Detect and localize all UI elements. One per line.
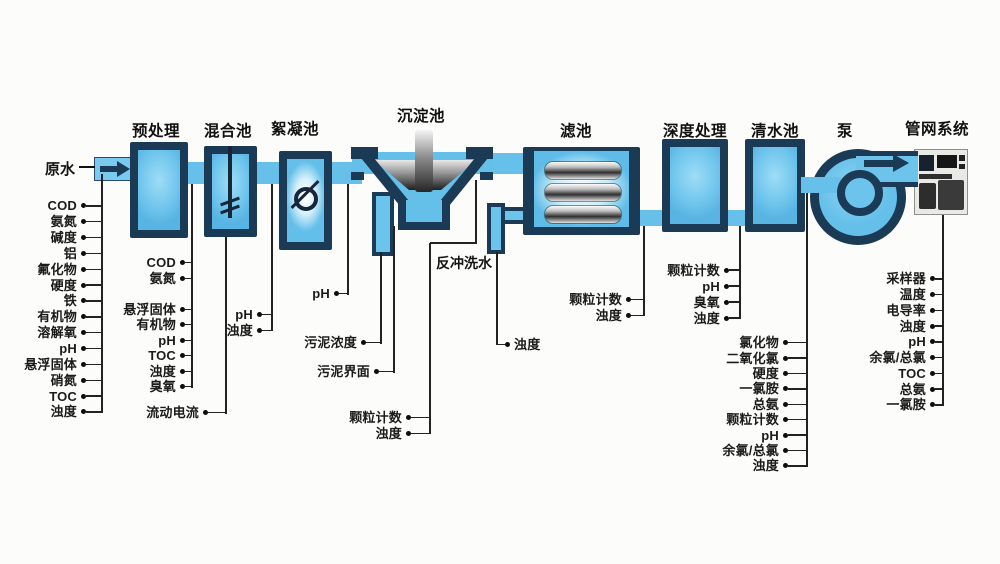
connector-line bbox=[380, 252, 381, 344]
connector-tick bbox=[86, 411, 102, 412]
param-label: pH bbox=[59, 342, 77, 355]
connector-tick bbox=[379, 371, 394, 372]
param-label: 浊度 bbox=[900, 320, 926, 333]
connector-tick bbox=[935, 325, 943, 326]
monitoring-list-flocculation-outlet: pH bbox=[288, 286, 348, 302]
monitoring-list-clearwell-outlet: 氯化物 二氧化氯 硬度 一氯胺 总氨 颗粒计数 pH 余氯/总氯 浊度 bbox=[697, 335, 807, 474]
param-label: 总氨 bbox=[900, 383, 926, 396]
connector-tick bbox=[788, 357, 807, 358]
list-gap bbox=[92, 286, 192, 302]
connector-tick bbox=[185, 371, 192, 372]
param-label: 颗粒计数 bbox=[726, 413, 779, 426]
connector-tick bbox=[729, 317, 740, 318]
connector-tick bbox=[86, 395, 102, 396]
param-label: 臭氧 bbox=[694, 296, 720, 309]
param-label: 硝氮 bbox=[51, 374, 77, 387]
monitoring-list-raw-water: COD 氨氮 碱度 铝 氟化物 硬度 铁 有机物 溶解氧 pH 悬浮固体 硝氮 … bbox=[2, 198, 102, 420]
connector-line bbox=[79, 166, 95, 168]
filter-media-cylinder bbox=[545, 184, 621, 201]
param-label: 颗粒计数 bbox=[349, 411, 402, 424]
connector-tick bbox=[935, 294, 943, 295]
analyzer-strip-icon bbox=[919, 174, 952, 179]
mixing-tank bbox=[204, 146, 257, 237]
param-label: 浊度 bbox=[227, 324, 253, 337]
analyzer-equipment-icon bbox=[938, 180, 964, 210]
connector-tick bbox=[262, 314, 272, 315]
connector-line bbox=[475, 180, 476, 243]
param-label: 电导率 bbox=[886, 304, 926, 317]
backwash-water-label: 反冲洗水 bbox=[436, 253, 492, 273]
filter-media-cylinder bbox=[545, 162, 621, 179]
param-label: 碱度 bbox=[51, 231, 77, 244]
connector-tick bbox=[788, 434, 807, 435]
connector-dot bbox=[505, 342, 510, 347]
advanced-treatment-tank bbox=[662, 139, 728, 232]
param-label: 悬浮固体 bbox=[123, 303, 176, 316]
param-label: 氨氮 bbox=[51, 215, 77, 228]
flow-arrow-icon bbox=[893, 154, 909, 172]
filter-media-cylinder bbox=[545, 206, 621, 223]
monitoring-list-network: 采样器 温度 电导率 浊度 pH 余氯/总氯 TOC 总氨 一氯胺 bbox=[838, 271, 943, 413]
connector-tick bbox=[935, 310, 943, 311]
connector-tick bbox=[935, 404, 943, 405]
param-label: 有机物 bbox=[136, 318, 176, 331]
monitoring-list-sludge-interface: 污泥界面 bbox=[304, 364, 394, 380]
flow-arrow-icon bbox=[117, 161, 130, 177]
param-label: 浊度 bbox=[694, 312, 720, 325]
connector-tick bbox=[208, 412, 226, 413]
connector-tick bbox=[935, 388, 943, 389]
connector-tick bbox=[788, 419, 807, 420]
connector-line bbox=[347, 184, 348, 295]
connector-tick bbox=[729, 301, 740, 302]
stage-title-filter: 滤池 bbox=[528, 119, 624, 141]
clearwell-tank bbox=[745, 139, 805, 232]
connector-tick bbox=[185, 324, 192, 325]
param-label: 余氯/总氯 bbox=[722, 444, 779, 457]
monitoring-list-pretreatment: COD 氨氮 悬浮固体 有机物 pH TOC 浊度 臭氧 bbox=[92, 255, 192, 395]
param-label: 一氯胺 bbox=[739, 382, 779, 395]
param-label: pH bbox=[908, 335, 926, 348]
param-label: 采样器 bbox=[886, 272, 926, 285]
param-label: 颗粒计数 bbox=[667, 264, 720, 277]
param-label: 二氧化氯 bbox=[726, 352, 779, 365]
connector-tick bbox=[788, 450, 807, 451]
connector-line bbox=[393, 226, 394, 373]
connector-tick bbox=[185, 355, 192, 356]
param-label: 污泥浓度 bbox=[304, 336, 357, 349]
connector-tick bbox=[339, 293, 348, 294]
pump-hub-icon bbox=[837, 170, 883, 216]
connector-tick bbox=[185, 278, 192, 279]
param-label: 铁 bbox=[64, 294, 77, 307]
connector-tick bbox=[411, 417, 430, 418]
param-label: 总氨 bbox=[753, 398, 779, 411]
param-label: 悬浮固体 bbox=[24, 358, 77, 371]
param-label: 浊度 bbox=[596, 309, 622, 322]
param-label: 溶解氧 bbox=[37, 326, 77, 339]
param-label: 颗粒计数 bbox=[569, 293, 622, 306]
connector-tick bbox=[86, 237, 102, 238]
param-label: 氯化物 bbox=[739, 336, 779, 349]
param-label: 浊度 bbox=[753, 459, 779, 472]
monitoring-list-sludge-concentration: 污泥浓度 bbox=[291, 335, 381, 351]
analyzer-equipment-icon bbox=[919, 183, 936, 209]
param-label: 浊度 bbox=[514, 338, 540, 351]
connector-tick bbox=[185, 340, 192, 341]
connector-tick bbox=[185, 309, 192, 310]
connector-tick bbox=[935, 373, 943, 374]
connector-line bbox=[496, 252, 497, 345]
param-label: TOC bbox=[898, 367, 926, 380]
param-label: COD bbox=[48, 199, 78, 212]
connector-tick bbox=[935, 341, 943, 342]
param-label: pH bbox=[312, 287, 330, 300]
connector-tick bbox=[86, 253, 102, 254]
connector-tick bbox=[411, 433, 430, 434]
param-label: 有机物 bbox=[37, 310, 77, 323]
connector-tick bbox=[935, 357, 943, 358]
connector-tick bbox=[262, 330, 272, 331]
param-label: 一氯胺 bbox=[886, 398, 926, 411]
monitoring-list-sedimentation-outlet: 颗粒计数 浊度 bbox=[330, 410, 430, 441]
monitoring-list-filter-outlet: 颗粒计数 浊度 bbox=[549, 292, 644, 323]
stage-title-pump: 泵 bbox=[797, 119, 893, 141]
stage-title-sedimentation: 沉淀池 bbox=[373, 104, 469, 126]
param-label: pH bbox=[761, 429, 779, 442]
param-label: pH bbox=[235, 308, 253, 321]
connector-tick bbox=[788, 465, 807, 466]
flow-arrow-icon bbox=[100, 166, 118, 172]
connector-tick bbox=[366, 342, 381, 343]
param-label: 余氯/总氯 bbox=[869, 351, 926, 364]
connector-tick bbox=[788, 404, 807, 405]
param-label: 浊度 bbox=[150, 365, 176, 378]
monitoring-list-advanced-outlet: 颗粒计数 pH 臭氧 浊度 bbox=[645, 262, 740, 326]
analyzer-button-icon bbox=[959, 155, 965, 161]
pump-inlet-pipe bbox=[801, 177, 841, 193]
monitoring-list-backwash: 浊度 bbox=[497, 337, 587, 353]
param-label: 浊度 bbox=[51, 405, 77, 418]
monitoring-list-mixing-outlet: pH 浊度 bbox=[202, 307, 272, 338]
param-label: 硬度 bbox=[753, 367, 779, 380]
analyzer-button-icon bbox=[959, 164, 965, 169]
connector-tick bbox=[729, 269, 740, 270]
network-analyzer-image bbox=[914, 149, 968, 215]
param-label: 温度 bbox=[900, 288, 926, 301]
param-label: TOC bbox=[148, 349, 176, 362]
param-label: 氨氮 bbox=[150, 272, 176, 285]
monitoring-list-mixing: 流动电流 bbox=[116, 405, 226, 421]
connector-tick bbox=[935, 278, 943, 279]
connector-tick bbox=[788, 388, 807, 389]
param-label: 铝 bbox=[64, 247, 77, 260]
connector-tick bbox=[86, 221, 102, 222]
connector-tick bbox=[497, 344, 505, 345]
param-label: TOC bbox=[49, 390, 77, 403]
connector-tick bbox=[788, 373, 807, 374]
stage-title-network: 管网系统 bbox=[889, 117, 985, 139]
param-label: 硬度 bbox=[51, 279, 77, 292]
connector-tick bbox=[631, 299, 644, 300]
connector-line bbox=[430, 242, 477, 243]
param-label: 氟化物 bbox=[37, 263, 77, 276]
flocculation-tank bbox=[279, 151, 332, 250]
connector-tick bbox=[788, 342, 807, 343]
pretreatment-tank bbox=[130, 142, 188, 238]
param-label: 臭氧 bbox=[150, 380, 176, 393]
connector-tick bbox=[185, 262, 192, 263]
param-label: pH bbox=[702, 280, 720, 293]
stage-title-flocculation: 絮凝池 bbox=[247, 117, 343, 139]
connector-line bbox=[429, 243, 430, 434]
analyzer-screen-icon bbox=[937, 155, 957, 168]
param-label: COD bbox=[147, 256, 177, 269]
connector-tick bbox=[729, 285, 740, 286]
connector-tick bbox=[185, 386, 192, 387]
flow-arrow-icon bbox=[864, 160, 894, 167]
param-label: 流动电流 bbox=[146, 406, 199, 419]
connector-tick bbox=[86, 205, 102, 206]
raw-water-label: 原水 bbox=[45, 158, 75, 179]
param-label: 污泥界面 bbox=[317, 365, 370, 378]
filter-tank bbox=[523, 147, 640, 235]
param-label: pH bbox=[158, 334, 176, 347]
water-treatment-process-diagram: 预处理 混合池 絮凝池 沉淀池 滤池 深度处理 清水池 泵 管网系统 原水 反冲… bbox=[0, 0, 1000, 564]
param-label: 浊度 bbox=[376, 427, 402, 440]
connector-tick bbox=[631, 315, 644, 316]
analyzer-screen-icon bbox=[919, 155, 934, 171]
